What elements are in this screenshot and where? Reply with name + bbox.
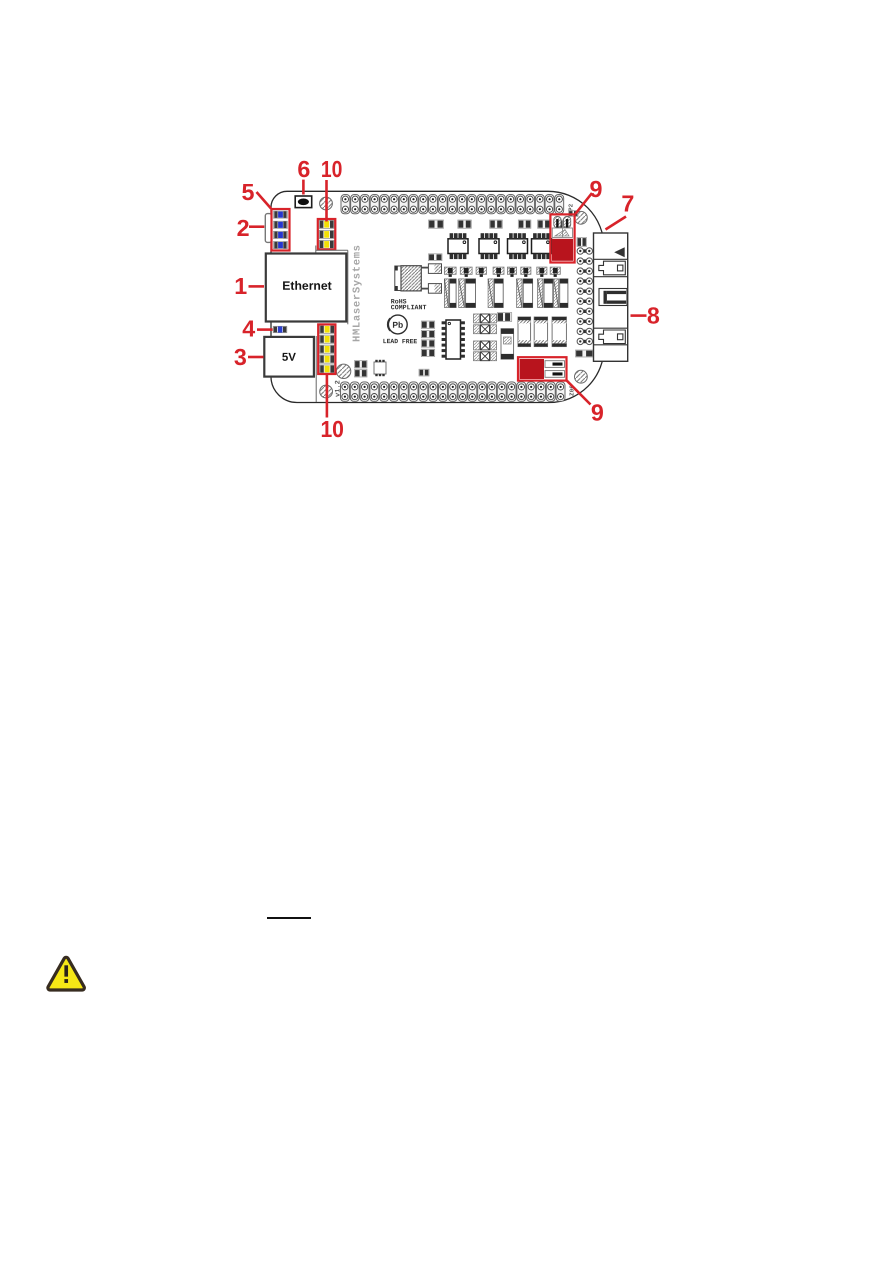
svg-text:4: 4: [242, 315, 255, 341]
svg-text:P2: P2: [568, 203, 575, 211]
svg-text:10: 10: [320, 416, 344, 442]
svg-text:5V: 5V: [282, 352, 296, 364]
svg-text:HMLaserSystems: HMLaserSystems: [352, 245, 364, 342]
svg-text:6: 6: [297, 156, 310, 182]
svg-text:Pb: Pb: [392, 320, 403, 330]
svg-text:8: 8: [647, 302, 660, 328]
svg-text:7: 7: [621, 190, 634, 216]
svg-text:v1.2: v1.2: [335, 380, 343, 397]
svg-text:5: 5: [242, 179, 255, 205]
svg-text:Ethernet: Ethernet: [282, 279, 331, 293]
svg-text:LEAD FREE: LEAD FREE: [383, 338, 418, 345]
svg-text:3: 3: [234, 344, 247, 370]
svg-text:2: 2: [237, 215, 250, 241]
svg-text:1: 1: [234, 273, 247, 299]
svg-text:9: 9: [590, 176, 603, 202]
svg-text:10: 10: [321, 156, 343, 182]
svg-text:COMPLIANT: COMPLIANT: [391, 304, 427, 311]
svg-text:9: 9: [591, 399, 604, 425]
